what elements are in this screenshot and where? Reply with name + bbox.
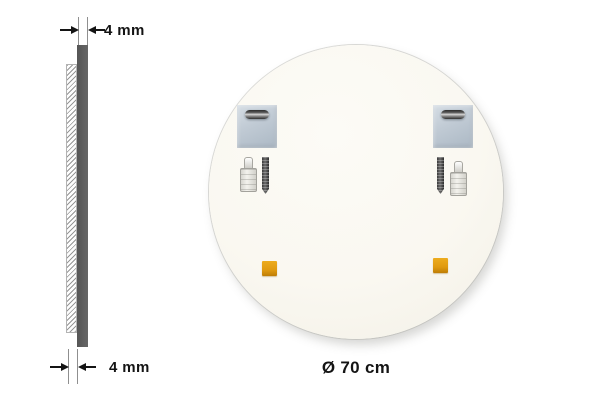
dimension-arrow-tail: [60, 29, 71, 31]
mirror-back-view: [209, 45, 503, 339]
wall-plug-body: [450, 172, 467, 196]
arrowhead-right-icon: [71, 26, 79, 34]
arrowhead-left-icon: [88, 26, 96, 34]
thickness-label-top: 4 mm: [104, 22, 145, 39]
backing-board-cross-section: [66, 64, 77, 333]
dimension-arrow-tail: [86, 366, 96, 368]
right-adhesive-pad: [433, 258, 448, 273]
arrowhead-right-icon: [61, 363, 69, 371]
keyhole-slot: [441, 110, 465, 119]
dimension-arrow-tail: [50, 366, 61, 368]
arrowhead-left-icon: [78, 363, 86, 371]
right-mounting-bracket: [433, 105, 473, 148]
left-adhesive-pad: [262, 261, 277, 276]
thickness-label-bottom: 4 mm: [109, 359, 150, 376]
left-wall-plug: [240, 157, 257, 192]
left-mounting-bracket: [237, 105, 277, 148]
keyhole-slot: [245, 110, 269, 119]
right-wall-plug: [450, 161, 467, 196]
mirror-glass-edge: [77, 45, 88, 347]
product-diagram: 4 mm 4 mm: [0, 0, 600, 400]
left-screw: [262, 157, 269, 194]
diameter-label: Ø 70 cm: [209, 358, 503, 378]
right-screw: [437, 157, 444, 194]
wall-plug-body: [240, 168, 257, 192]
